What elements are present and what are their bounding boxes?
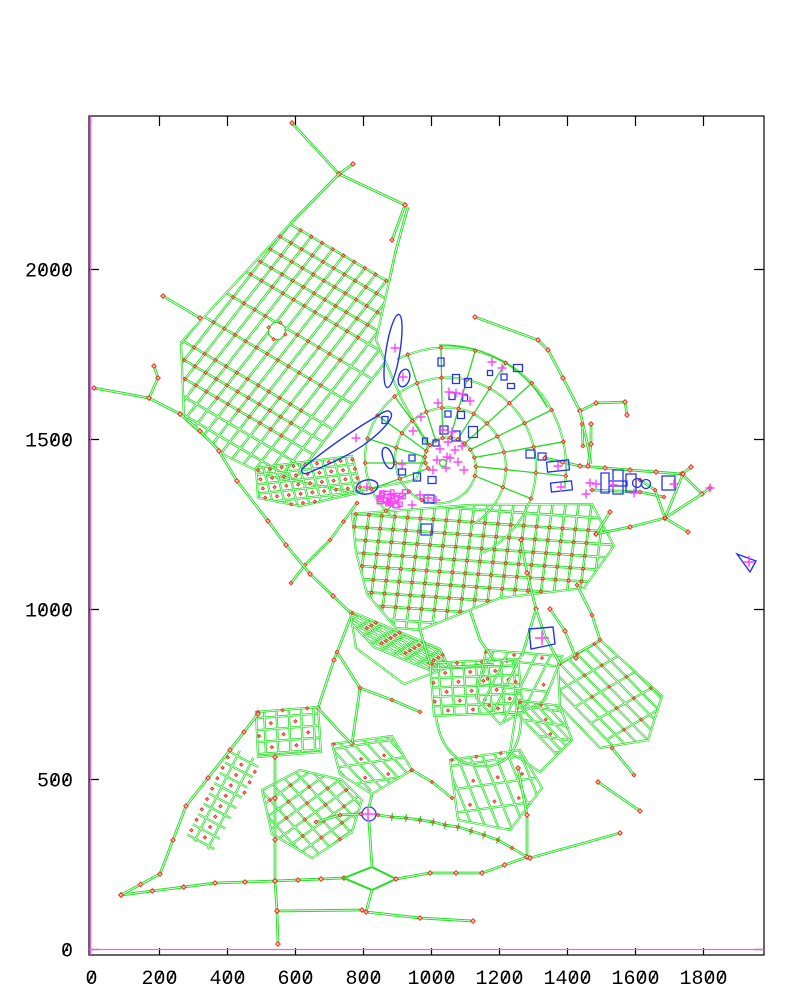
svg-text:500: 500 — [37, 771, 73, 794]
svg-text:1000: 1000 — [25, 601, 73, 624]
svg-text:0: 0 — [61, 941, 73, 964]
svg-text:2000: 2000 — [25, 261, 73, 284]
svg-text:1500: 1500 — [25, 431, 73, 454]
svg-text:200: 200 — [141, 968, 177, 991]
svg-text:600: 600 — [277, 968, 313, 991]
svg-text:400: 400 — [209, 968, 245, 991]
svg-text:800: 800 — [345, 968, 381, 991]
svg-text:0: 0 — [85, 968, 97, 991]
